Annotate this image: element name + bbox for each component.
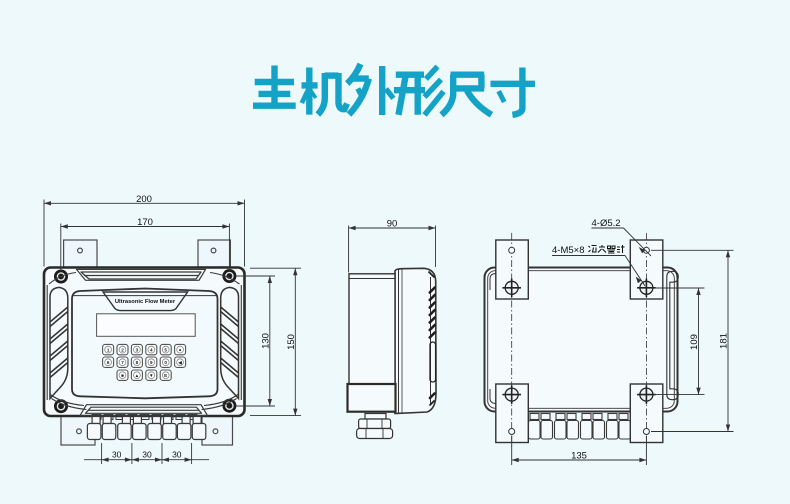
svg-text:2: 2 xyxy=(121,348,124,353)
svg-text:●: ● xyxy=(179,348,182,353)
svg-text:130: 130 xyxy=(260,333,271,349)
svg-text:150: 150 xyxy=(286,334,297,350)
svg-text:7: 7 xyxy=(121,360,124,365)
svg-text:Ultrasonic Flow Meter: Ultrasonic Flow Meter xyxy=(115,299,176,305)
svg-text:3: 3 xyxy=(136,348,139,353)
svg-text:90: 90 xyxy=(387,218,398,229)
svg-text:5: 5 xyxy=(164,348,167,353)
svg-text:181: 181 xyxy=(719,333,730,349)
svg-text:8: 8 xyxy=(136,360,139,365)
svg-text:9: 9 xyxy=(150,360,153,365)
svg-text:1: 1 xyxy=(107,348,110,353)
svg-text:◀: ◀ xyxy=(177,360,182,365)
svg-text:4-M5×8: 4-M5×8 xyxy=(552,245,584,256)
svg-text:▲: ▲ xyxy=(135,373,140,378)
svg-text:135: 135 xyxy=(571,451,587,462)
svg-text:30: 30 xyxy=(112,450,122,460)
svg-text:4-Ø5.2: 4-Ø5.2 xyxy=(592,218,621,229)
svg-text:30: 30 xyxy=(172,450,182,460)
svg-text:200: 200 xyxy=(136,194,152,205)
svg-text:6: 6 xyxy=(107,360,110,365)
svg-text:4: 4 xyxy=(150,348,153,353)
svg-text:■: ■ xyxy=(121,373,124,378)
svg-text:30: 30 xyxy=(142,450,152,460)
svg-text:▼: ▼ xyxy=(149,373,154,378)
svg-text:E: E xyxy=(164,373,167,378)
svg-text:0: 0 xyxy=(164,360,167,365)
svg-text:170: 170 xyxy=(137,217,153,228)
svg-text:109: 109 xyxy=(689,334,700,350)
